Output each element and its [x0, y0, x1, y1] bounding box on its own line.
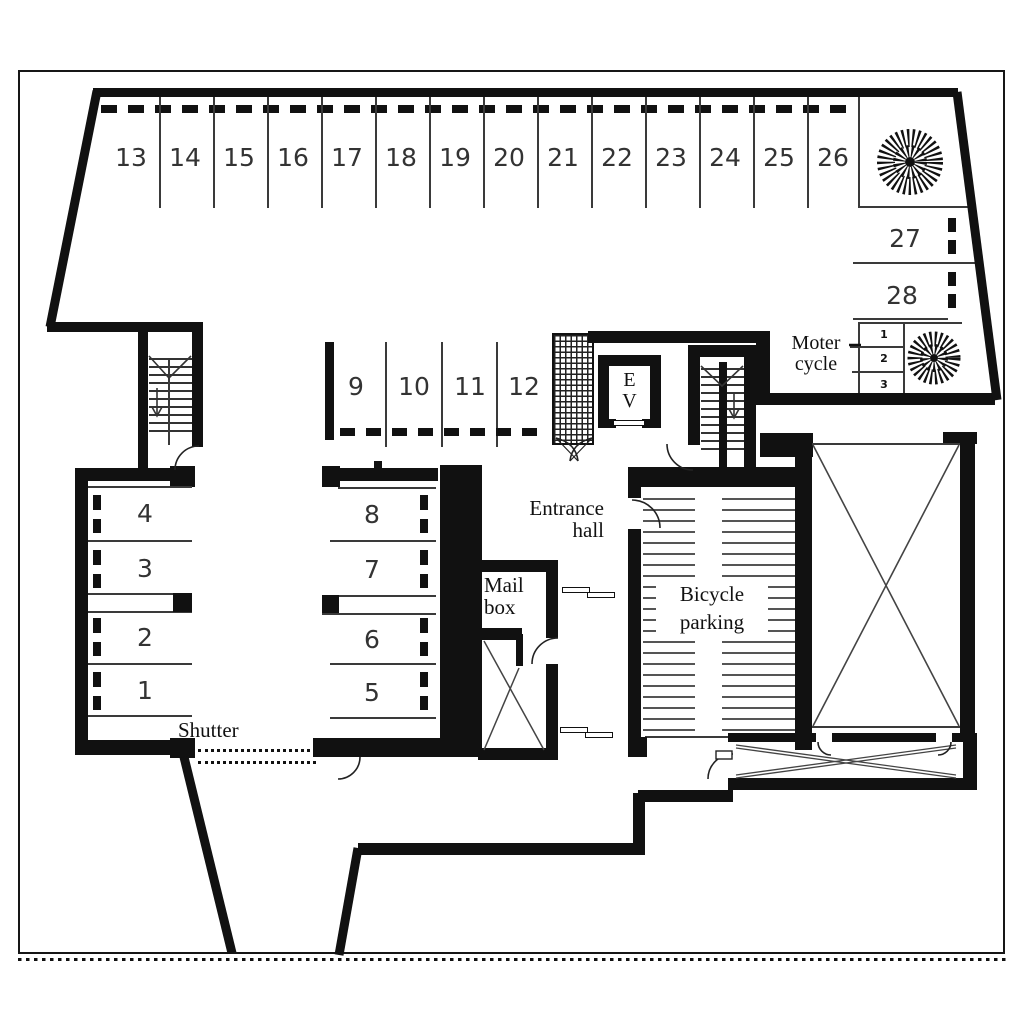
storage-wall: [478, 748, 558, 760]
wheel-stops: [93, 550, 101, 588]
space-number: 11: [450, 372, 490, 401]
door-opening: [936, 733, 952, 742]
motorcycle-label-line1: Moter: [792, 332, 841, 354]
divider-line: [537, 97, 539, 208]
space-number: 28: [880, 281, 924, 310]
space-number: 18: [381, 143, 421, 172]
space-number: 17: [327, 143, 367, 172]
space-number: 8: [352, 500, 392, 529]
wall: [93, 88, 958, 97]
sliding-door[interactable]: [560, 727, 588, 733]
mailbox-label-line2: box: [484, 595, 516, 619]
wall: [960, 432, 975, 733]
wall-stub: [374, 461, 382, 470]
motorcycle-label-line2: cycle: [795, 353, 837, 375]
elevator-wall: [650, 355, 661, 428]
moto-line: [858, 322, 860, 398]
wall: [75, 468, 88, 755]
entrance-hall-label-line2: hall: [573, 518, 605, 542]
shutter-door[interactable]: [198, 749, 316, 764]
divider-line: [483, 97, 485, 208]
wall-stub: [516, 634, 523, 666]
divider-line: [88, 540, 192, 542]
space-number: 20: [489, 143, 529, 172]
space-number: 26: [813, 143, 853, 172]
space-number: 6: [352, 625, 392, 654]
space-number: 7: [352, 555, 392, 584]
space-number: 27: [883, 224, 927, 253]
elevator-label-e: E: [623, 369, 635, 391]
moto-line: [903, 322, 905, 398]
elevator-label-v: V: [622, 390, 636, 412]
ramp-room-line: [812, 726, 960, 728]
divider-line: [322, 595, 436, 597]
space-number: 24: [705, 143, 745, 172]
stair-wall: [138, 332, 148, 470]
divider-line: [699, 97, 701, 208]
moto-line: [858, 322, 962, 324]
space-number: 22: [597, 143, 637, 172]
moto-line: [852, 371, 905, 373]
divider-line: [753, 97, 755, 208]
space-number: 4: [125, 499, 165, 528]
stair-treads: [149, 358, 192, 432]
divider-line: [267, 97, 269, 208]
wall: [728, 778, 977, 790]
wall: [170, 466, 195, 487]
divider-line: [330, 663, 436, 665]
door-opening: [546, 638, 558, 664]
sliding-door[interactable]: [562, 587, 590, 593]
divider-line: [88, 663, 192, 665]
wheel-stops: [420, 672, 428, 710]
divider-line: [645, 97, 647, 208]
wall: [47, 322, 203, 332]
divider-line: [338, 487, 436, 489]
divider-line: [321, 97, 323, 208]
wheel-stops: [948, 272, 956, 309]
ramp-room-line: [812, 443, 960, 445]
space-number: 12: [504, 372, 544, 401]
floor-plan: 13 14 15 16 17 18 19 20 21 22 23 24 25 2…: [0, 0, 1024, 1024]
sliding-door[interactable]: [585, 732, 613, 738]
mailbox-label: Mail box: [484, 574, 524, 618]
moto-bay-number: 2: [872, 352, 896, 365]
entry-steps-hatch: [552, 333, 594, 445]
elevator-door[interactable]: [613, 420, 645, 426]
wheel-stops: [420, 618, 428, 656]
divider-line: [429, 97, 431, 208]
wheel-stops: [93, 495, 101, 533]
divider-line: [322, 613, 436, 615]
shutter-label: Shutter: [178, 719, 239, 741]
wall: [728, 733, 963, 742]
wheel-stops: [93, 618, 101, 656]
space-number: 14: [165, 143, 205, 172]
space-number: 21: [543, 143, 583, 172]
wheel-stops: [420, 550, 428, 588]
bicycle-wall: [795, 440, 812, 750]
wall: [756, 393, 995, 405]
divider-line: [853, 318, 948, 320]
wall-stub: [628, 737, 647, 757]
space-number: 5: [352, 678, 392, 707]
divider-line: [159, 97, 161, 208]
space-number: 13: [111, 143, 151, 172]
space-number: 15: [219, 143, 259, 172]
wall: [963, 733, 977, 790]
divider-line: [88, 486, 192, 488]
wall: [322, 466, 340, 487]
space-number: 2: [125, 623, 165, 652]
wall: [760, 433, 813, 457]
tree-box-line: [858, 97, 860, 208]
stair-wall: [192, 330, 203, 447]
moto-bay-number: 3: [872, 378, 896, 391]
door-opening: [816, 733, 832, 742]
motorcycle-label: Moter cycle: [780, 333, 852, 375]
divider-line: [807, 97, 809, 208]
elevator-label: E V: [618, 370, 641, 412]
space-number: 19: [435, 143, 475, 172]
elevator-wall: [598, 355, 609, 428]
wall: [588, 331, 770, 343]
space-number: 9: [336, 372, 376, 401]
property-dotted-line: [18, 958, 1006, 961]
wall: [358, 843, 645, 855]
space-number: 1: [125, 676, 165, 705]
space-number: 10: [394, 372, 434, 401]
wall-stub: [325, 342, 334, 440]
wall: [638, 790, 733, 802]
wheel-stops: [420, 495, 428, 533]
divider-line: [330, 717, 436, 719]
bicycle-parking-label: Bicycle parking: [656, 580, 768, 637]
space-number: 3: [125, 554, 165, 583]
divider-line: [330, 540, 436, 542]
divider-line: [591, 97, 593, 208]
entrance-hall-label: Entrance hall: [488, 497, 604, 541]
wheel-stops-mid-row: [340, 428, 546, 436]
entrance-hall-label-line1: Entrance: [529, 496, 604, 520]
stair-center-line: [168, 360, 170, 445]
bicycle-label-line2: parking: [680, 610, 744, 634]
door-opening: [628, 498, 641, 529]
space-number: 23: [651, 143, 691, 172]
divider-line: [88, 715, 192, 717]
divider-line: [375, 97, 377, 208]
space-number: 25: [759, 143, 799, 172]
mailbox-label-line1: Mail: [484, 573, 524, 597]
tree-box-line: [858, 206, 970, 208]
core-wall: [440, 465, 482, 757]
divider-line: [213, 97, 215, 208]
space-number: 16: [273, 143, 313, 172]
wheel-stops: [93, 672, 101, 710]
bicycle-wall: [628, 467, 800, 487]
wall: [313, 738, 443, 757]
stair-wall: [744, 345, 756, 487]
column-block: [173, 593, 192, 612]
wheel-stops: [948, 218, 956, 255]
sliding-door[interactable]: [587, 592, 615, 598]
bicycle-label-line1: Bicycle: [680, 582, 744, 606]
moto-bay-number: 1: [872, 328, 896, 341]
moto-line: [850, 346, 905, 348]
stair-wall: [688, 345, 700, 445]
column-block: [322, 595, 339, 613]
divider-line: [853, 262, 975, 264]
